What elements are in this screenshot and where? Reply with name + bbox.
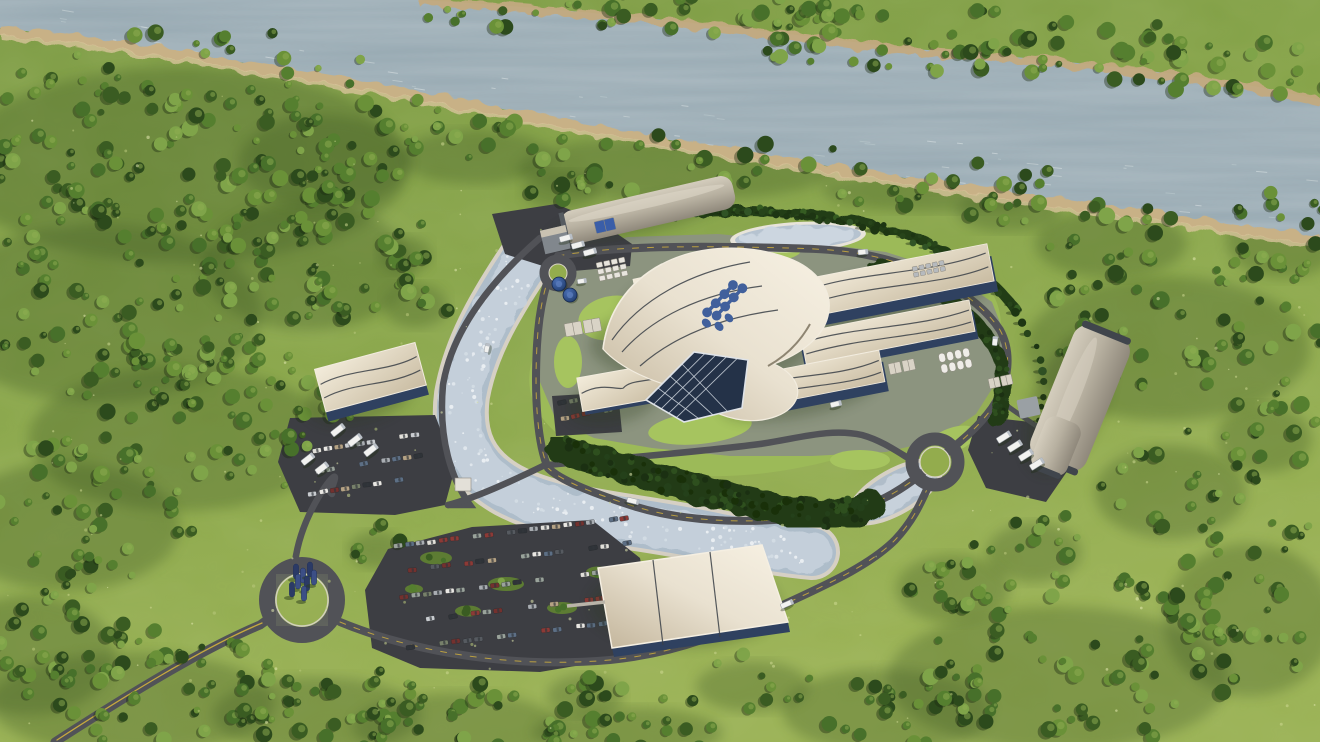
scene-svg (0, 0, 1320, 742)
utility-hut (455, 478, 471, 491)
aerial-scene (0, 0, 1320, 742)
